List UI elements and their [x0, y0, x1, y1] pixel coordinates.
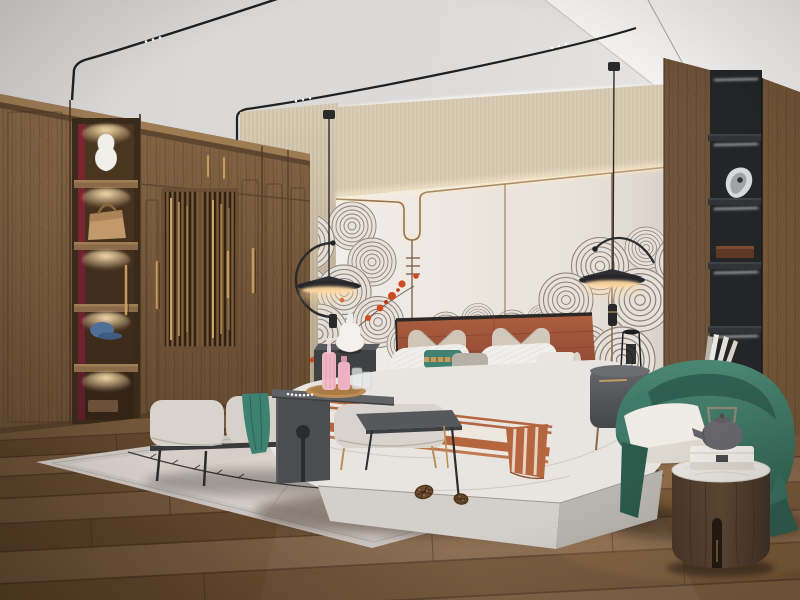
scene-canvas — [0, 0, 800, 600]
bedroom-render — [0, 0, 800, 600]
vignette — [0, 0, 800, 600]
